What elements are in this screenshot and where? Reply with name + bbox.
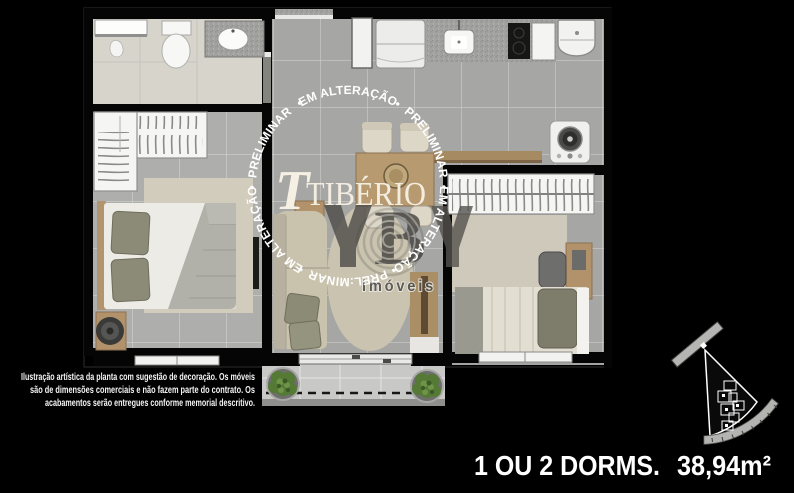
svg-text:38,94m²: 38,94m² xyxy=(677,450,771,481)
svg-text:acabamentos serão entregues co: acabamentos serão entregues conforme mem… xyxy=(45,398,255,409)
svg-text:1 OU 2 DORMS.: 1 OU 2 DORMS. xyxy=(474,450,660,481)
svg-text:•: • xyxy=(245,185,259,190)
svg-text:TIBÉRIO: TIBÉRIO xyxy=(306,176,426,213)
svg-text:Ilustração artística da planta: Ilustração artística da planta com suges… xyxy=(21,372,255,383)
svg-text:são de dimensões comerciais e: são de dimensões comerciais e não fazem … xyxy=(30,385,255,396)
